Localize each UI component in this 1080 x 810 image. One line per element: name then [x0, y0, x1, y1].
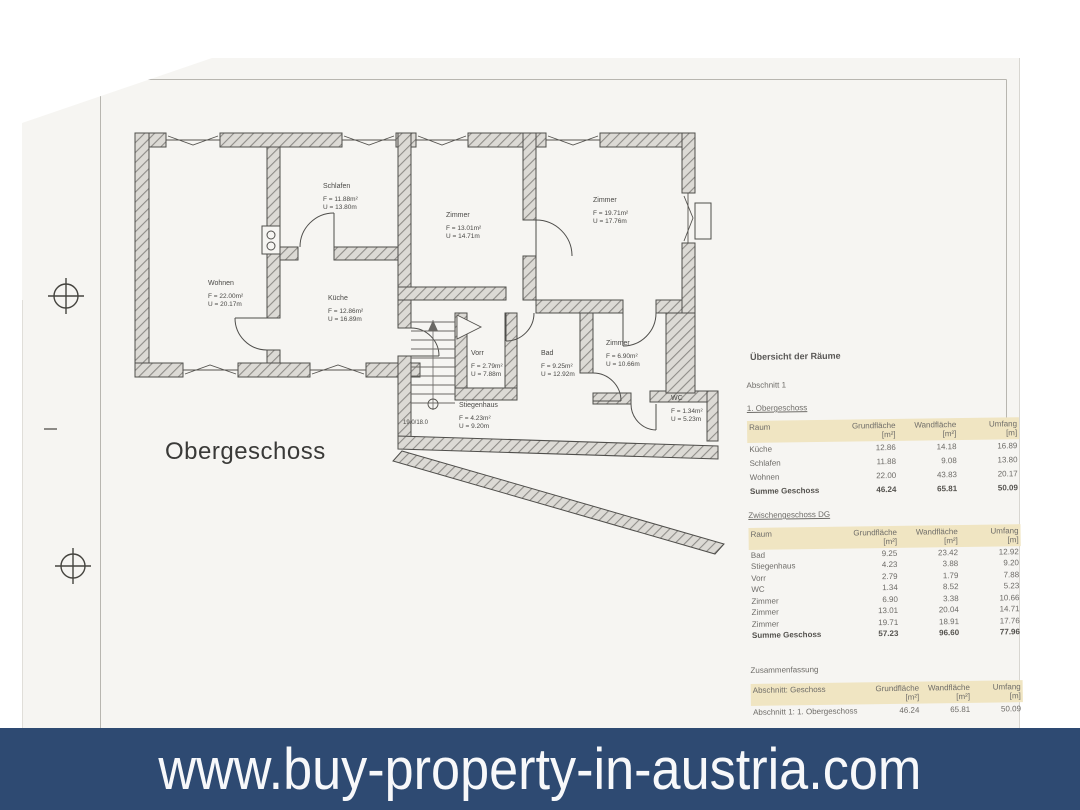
header-cell: Wandfläche[m²]	[895, 420, 956, 439]
cell: Zimmer	[752, 618, 838, 629]
room-name: Stiegenhaus	[459, 402, 498, 411]
cell: 50.09	[970, 704, 1021, 715]
header-cell: Raum	[750, 529, 836, 548]
cell: 65.81	[919, 705, 970, 716]
table-zwischengeschoss: Zwischengeschoss DG Raum Grundfläche[m²]…	[748, 495, 1022, 642]
cell: 14.71	[959, 604, 1020, 615]
room-name: Zimmer	[593, 197, 628, 206]
cell: 20.17	[957, 469, 1018, 480]
cell: 3.88	[897, 559, 958, 570]
room-perimeter: U = 17.76m	[593, 218, 628, 227]
stair-direction-arrow-icon	[457, 315, 481, 339]
cell: Stiegenhaus	[751, 561, 837, 572]
room-perimeter: U = 13.80m	[323, 204, 358, 213]
cell: 11.88	[835, 457, 896, 468]
cell: Abschnitt 1: 1. Obergeschoss	[753, 706, 869, 718]
room-perimeter: U = 16.89m	[328, 316, 363, 325]
room-name: Wohnen	[208, 280, 243, 289]
cell: 20.04	[898, 605, 959, 616]
header-cell: Umfang[m]	[970, 682, 1021, 701]
cell: Schlafen	[749, 458, 835, 469]
cell: Summe Geschoss	[752, 630, 838, 641]
cell: Zimmer	[752, 607, 838, 618]
cell: 9.20	[958, 558, 1019, 569]
room-area: F = 12.86m²	[328, 308, 363, 317]
room-perimeter: U = 9.20m	[459, 423, 498, 432]
cell: 6.90	[837, 595, 898, 606]
stair-dimension-note: 19.0/18.0	[403, 420, 428, 426]
header-cell: Wandfläche[m²]	[919, 683, 970, 702]
room-perimeter: U = 12.92m	[541, 371, 575, 380]
cell: 8.52	[898, 582, 959, 593]
cell: 46.24	[869, 706, 920, 717]
cell: 7.88	[958, 570, 1019, 581]
cell: Küche	[749, 444, 835, 455]
room-area: F = 9.25m²	[541, 363, 575, 372]
room-name: Küche	[328, 295, 363, 304]
room-label-zimmer-klein: Zimmer F = 6.90m² U = 10.66m	[606, 340, 640, 370]
room-label-vorr: Vorr F = 2.79m² U = 7.88m	[471, 350, 503, 380]
website-url: www.buy-property-in-austria.com	[159, 736, 922, 803]
header-cell: Raum	[749, 422, 835, 441]
room-name: Bad	[541, 350, 575, 359]
cell: 12.92	[958, 547, 1019, 558]
header-cell: Wandfläche[m²]	[897, 527, 958, 546]
cell: 16.89	[956, 441, 1017, 452]
room-perimeter: U = 14.71m	[446, 233, 481, 242]
cell: 50.09	[957, 483, 1018, 494]
room-area: F = 4.23m²	[459, 415, 498, 424]
cell: Vorr	[751, 573, 837, 584]
cell: 57.23	[838, 629, 899, 640]
cell: 43.83	[896, 470, 957, 481]
room-perimeter: U = 10.66m	[606, 361, 640, 370]
window-symbols	[166, 136, 693, 374]
room-label-zimmer-rechts: Zimmer F = 19.71m² U = 17.76m	[593, 197, 628, 227]
room-area: F = 2.79m²	[471, 363, 503, 372]
room-perimeter: U = 20.17m	[208, 301, 243, 310]
cell: Zimmer	[751, 596, 837, 607]
room-label-schlafen: Schlafen F = 11.88m² U = 13.80m	[323, 183, 358, 213]
cell: 3.38	[898, 594, 959, 605]
paper-edge	[22, 300, 23, 728]
cell: 17.76	[959, 616, 1020, 627]
room-name: Schlafen	[323, 183, 358, 192]
cell: 9.25	[836, 549, 897, 560]
header-cell: Grundfläche[m²]	[836, 528, 897, 547]
table-title: Zwischengeschoss DG	[748, 510, 830, 521]
cell: WC	[751, 584, 837, 595]
room-label-wc: WC F = 1.34m² U = 5.23m	[671, 395, 703, 425]
cell: 14.18	[896, 442, 957, 453]
cell: 12.86	[835, 443, 896, 454]
header-cell: Grundfläche[m²]	[868, 684, 919, 703]
room-label-bad: Bad F = 9.25m² U = 12.92m	[541, 350, 575, 380]
cell: 1.34	[837, 583, 898, 594]
room-area: F = 13.01m²	[446, 225, 481, 234]
room-area: F = 6.90m²	[606, 353, 640, 362]
table-title: Zusammenfassung	[750, 665, 818, 676]
cell: 1.79	[898, 571, 959, 582]
room-label-zimmer-mitte: Zimmer F = 13.01m² U = 14.71m	[446, 212, 481, 242]
header-cell: Umfang[m]	[956, 419, 1017, 438]
cell: Summe Geschoss	[750, 486, 836, 497]
stove-icon	[262, 226, 280, 254]
header-cell: Umfang[m]	[958, 526, 1019, 545]
room-name: Zimmer	[606, 340, 640, 349]
floor-title: Obergeschoss	[165, 438, 326, 466]
table-obergeschoss: 1. Obergeschoss Raum Grundfläche[m²] Wan…	[747, 400, 1020, 499]
cell: 46.24	[836, 485, 897, 496]
room-name: WC	[671, 395, 703, 404]
header-cell: Abschnitt: Geschoss	[753, 684, 869, 704]
cell: 2.79	[837, 572, 898, 583]
room-area: F = 22.00m²	[208, 293, 243, 302]
cell: 96.60	[898, 628, 959, 639]
room-name: Vorr	[471, 350, 503, 359]
room-name: Zimmer	[446, 212, 481, 221]
table-zusammenfassung: Zusammenfassung Abschnitt: Geschoss Grun…	[750, 638, 1023, 720]
paper-corner-fold	[22, 58, 212, 123]
table-title: 1. Obergeschoss	[747, 403, 808, 414]
room-perimeter: U = 7.88m	[471, 371, 503, 380]
cell: 77.96	[959, 627, 1020, 638]
website-banner: www.buy-property-in-austria.com	[0, 728, 1080, 810]
room-label-stiegenhaus: Stiegenhaus F = 4.23m² U = 9.20m	[459, 402, 498, 432]
room-label-wohnen: Wohnen F = 22.00m² U = 20.17m	[208, 280, 243, 310]
room-area: F = 19.71m²	[593, 210, 628, 219]
cell: 13.01	[837, 606, 898, 617]
cell: Bad	[751, 550, 837, 561]
scanned-floor-plan-page: Wohnen F = 22.00m² U = 20.17m Schlafen F…	[0, 0, 1080, 810]
cell: 19.71	[837, 618, 898, 629]
room-perimeter: U = 5.23m	[671, 416, 703, 425]
cell: 4.23	[837, 560, 898, 571]
registration-cross-icon	[44, 278, 91, 584]
section-label: Abschnitt 1	[746, 377, 1018, 391]
cell: 5.23	[958, 581, 1019, 592]
cell: 23.42	[897, 548, 958, 559]
cell: Wohnen	[750, 472, 836, 483]
room-area: F = 11.88m²	[323, 196, 358, 205]
room-area: F = 1.34m²	[671, 408, 703, 417]
cell: 22.00	[835, 471, 896, 482]
room-label-kueche: Küche F = 12.86m² U = 16.89m	[328, 295, 363, 325]
header-cell: Grundfläche[m²]	[835, 421, 896, 440]
room-overview-panel: Übersicht der Räume Abschnitt 1 1. Oberg…	[746, 348, 1023, 720]
cell: 10.66	[959, 593, 1020, 604]
cell: 65.81	[896, 484, 957, 495]
cell: 13.80	[957, 455, 1018, 466]
bay-niche	[695, 203, 711, 239]
cell: 9.08	[896, 456, 957, 467]
cell: 18.91	[898, 617, 959, 628]
